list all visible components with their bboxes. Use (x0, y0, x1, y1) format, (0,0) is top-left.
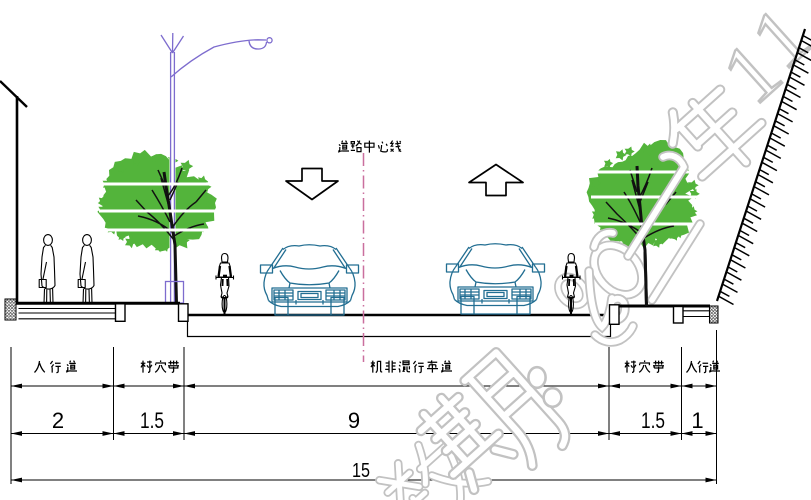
svg-text:1: 1 (691, 408, 703, 433)
svg-text:15: 15 (352, 460, 370, 482)
svg-text:1.5: 1.5 (140, 408, 164, 433)
svg-text:9: 9 (348, 408, 360, 433)
svg-text:2: 2 (52, 408, 64, 433)
svg-text:1.5: 1.5 (641, 408, 665, 433)
